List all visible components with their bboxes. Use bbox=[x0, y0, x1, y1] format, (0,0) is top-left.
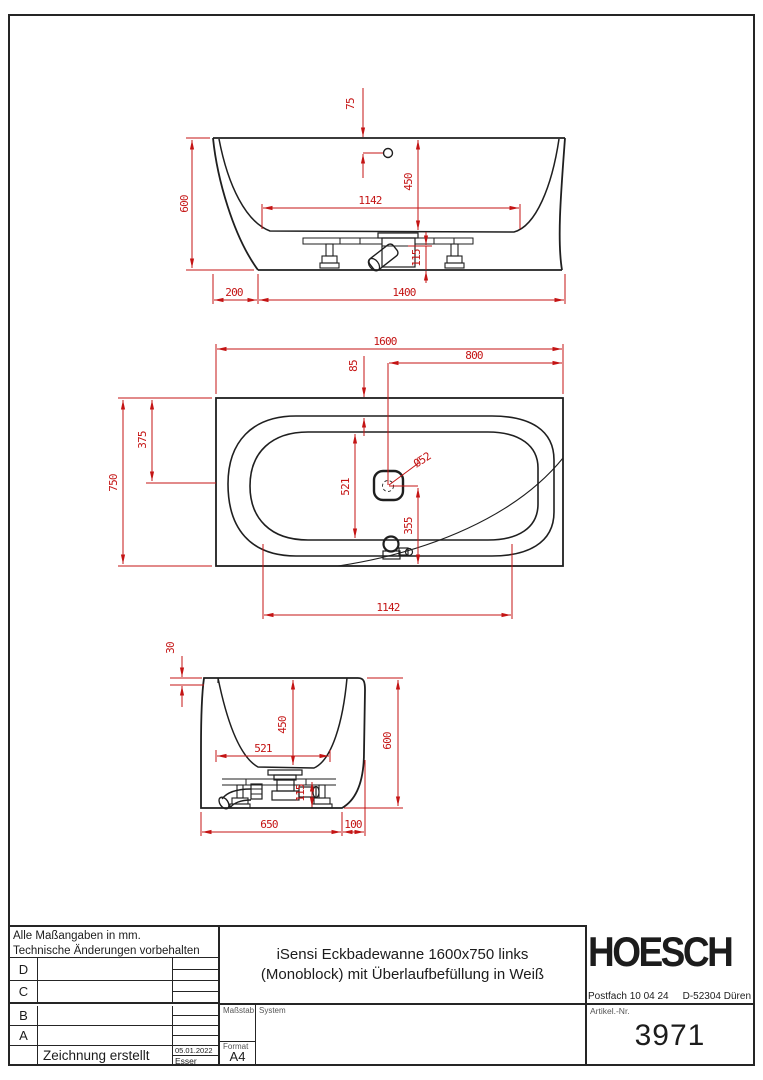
article-number: 3971 bbox=[587, 1019, 753, 1053]
created-by: Esser bbox=[173, 1056, 218, 1066]
plan-dim-diameter: Ø52 bbox=[411, 450, 433, 471]
revision-letter: C bbox=[10, 981, 38, 1002]
created-label: Zeichnung erstellt bbox=[38, 1046, 172, 1064]
plan-dim-521: 521 bbox=[339, 478, 352, 496]
front-outline-left bbox=[213, 138, 258, 270]
created-date: 05.01.2022 bbox=[173, 1046, 218, 1056]
article-cell: Artikel.-Nr. 3971 bbox=[585, 1005, 753, 1064]
format-value: A4 bbox=[220, 1051, 255, 1062]
plan-dim-1142: 1142 bbox=[376, 601, 399, 614]
front-dim-1142: 1142 bbox=[358, 194, 381, 207]
side-dim-30: 30 bbox=[164, 642, 177, 654]
plan-dim-375: 375 bbox=[136, 431, 149, 449]
format-cell: Format A4 bbox=[218, 1042, 256, 1064]
technical-drawing: 75 600 450 1142 115 200 1400 bbox=[0, 0, 763, 920]
side-view: 30 450 521 600 115 650 100 bbox=[164, 642, 403, 836]
front-overflow-hole bbox=[384, 149, 393, 158]
side-dimensions bbox=[170, 656, 403, 836]
address-postfach: Postfach 10 04 24 bbox=[588, 991, 669, 1002]
scale-cell: Maßstab bbox=[218, 1005, 256, 1042]
revision-letter: A bbox=[10, 1026, 38, 1045]
dimension-notes: Alle Maßangaben in mm. Technische Änderu… bbox=[10, 925, 218, 958]
revision-description bbox=[38, 1026, 172, 1045]
side-dim-100: 100 bbox=[344, 818, 362, 831]
scale-label: Maßstab bbox=[220, 1005, 255, 1015]
address-city: D-52304 Düren bbox=[683, 991, 751, 1002]
article-label: Artikel.-Nr. bbox=[587, 1005, 753, 1016]
side-dim-450: 450 bbox=[276, 716, 289, 734]
plan-dim-85: 85 bbox=[347, 360, 360, 372]
revision-row-c: C bbox=[10, 981, 218, 1004]
title-line-2: (Monoblock) mit Überlaufbefüllung in Wei… bbox=[261, 965, 544, 985]
front-dim-75: 75 bbox=[344, 98, 357, 110]
note-line-2: Technische Änderungen vorbehalten bbox=[13, 944, 218, 959]
side-dim-650: 650 bbox=[260, 818, 278, 831]
front-view: 75 600 450 1142 115 200 1400 bbox=[178, 88, 565, 304]
brand-address: Postfach 10 04 24 D-52304 Düren bbox=[587, 991, 753, 1003]
front-dim-1400: 1400 bbox=[392, 286, 415, 299]
side-dim-115: 115 bbox=[294, 784, 307, 802]
front-dim-200: 200 bbox=[225, 286, 243, 299]
revision-row-d: D bbox=[10, 958, 218, 981]
front-outline-right bbox=[560, 138, 565, 270]
created-row: Zeichnung erstellt 05.01.2022 Esser bbox=[10, 1046, 218, 1064]
system-label: System bbox=[256, 1005, 585, 1015]
drawing-title: iSensi Eckbadewanne 1600x750 links (Mono… bbox=[218, 925, 585, 1005]
brand-cell: HOESCH Postfach 10 04 24 D-52304 Düren bbox=[585, 925, 753, 1005]
title-line-1: iSensi Eckbadewanne 1600x750 links bbox=[277, 945, 529, 965]
front-rail-left bbox=[303, 238, 382, 244]
system-cell: System bbox=[256, 1005, 585, 1064]
revision-date-name bbox=[172, 1026, 218, 1045]
revision-row-a: A bbox=[10, 1026, 218, 1046]
front-rail-right bbox=[415, 238, 473, 244]
brand-logo: HOESCH bbox=[587, 925, 753, 972]
front-inner-bowl bbox=[219, 139, 559, 232]
plan-dim-750: 750 bbox=[107, 474, 120, 492]
revision-date-name bbox=[172, 958, 218, 980]
note-line-1: Alle Maßangaben in mm. bbox=[13, 929, 218, 944]
side-outline bbox=[201, 678, 365, 808]
plan-dim-1600: 1600 bbox=[373, 335, 396, 348]
revision-date-name bbox=[172, 981, 218, 1002]
front-dim-450: 450 bbox=[402, 173, 415, 191]
plan-dim-355: 355 bbox=[402, 517, 415, 535]
revision-date-name bbox=[172, 1006, 218, 1025]
revision-description bbox=[38, 981, 172, 1002]
revision-letter: B bbox=[10, 1006, 38, 1025]
front-dim-115: 115 bbox=[410, 249, 423, 267]
front-foot-right bbox=[445, 244, 464, 268]
front-dim-600: 600 bbox=[178, 195, 191, 213]
revision-description bbox=[38, 1006, 172, 1025]
plan-dim-800: 800 bbox=[465, 349, 483, 362]
front-foot-left bbox=[320, 244, 339, 268]
revision-row-b: B bbox=[10, 1006, 218, 1026]
revision-description bbox=[38, 958, 172, 980]
side-dim-600: 600 bbox=[381, 732, 394, 750]
revision-letter: D bbox=[10, 958, 38, 980]
plan-view: 1600 800 85 Ø52 521 355 1142 750 375 bbox=[107, 335, 563, 619]
drawing-sheet: 75 600 450 1142 115 200 1400 bbox=[0, 0, 763, 1080]
side-dim-521: 521 bbox=[254, 742, 272, 755]
